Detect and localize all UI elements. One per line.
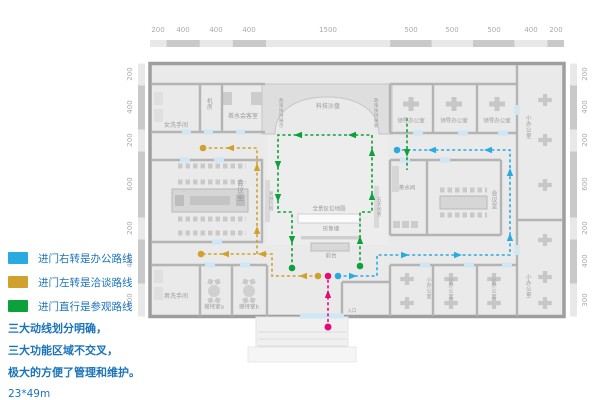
entrance-steps xyxy=(248,317,356,362)
dim-top-3: 400 xyxy=(242,26,255,34)
ruler-top xyxy=(150,40,564,47)
room-label-leader-office-2: 领导办公室 xyxy=(440,119,468,125)
note-line-2: 三大功能区域不交叉， xyxy=(8,340,146,362)
ruler-right xyxy=(570,64,577,317)
legend-item-tour: 进门直行是参观路线 xyxy=(8,294,146,318)
dim-right-0: 200 xyxy=(581,67,589,80)
room-label-men-restroom: 男洗手间 xyxy=(164,294,188,300)
room-label-small-office-right-bottom: 小办公室 xyxy=(524,274,530,298)
dim-right-6: 300 xyxy=(581,293,589,306)
room-label-small-office-right-top: 小办公室 xyxy=(524,115,530,139)
room-label-reception-a: 接待室a xyxy=(204,305,224,311)
dim-left-2: 200 xyxy=(126,133,134,146)
dim-top-1: 400 xyxy=(176,26,189,34)
legend-label-office: 进门右转是办公路线 xyxy=(38,251,133,266)
legend-item-negotiation: 进门左转是洽谈路线 xyxy=(8,270,146,294)
legend-item-office: 进门右转是办公路线 xyxy=(8,246,146,270)
legend: 进门右转是办公路线 进门左转是洽谈路线 进门直行是参观路线 三大动线划分明确， … xyxy=(8,246,146,400)
room-label-entrance: 入口 xyxy=(348,310,357,315)
dim-right-3: 600 xyxy=(581,177,589,190)
dim-top-0: 200 xyxy=(151,26,164,34)
office-route-swatch xyxy=(8,252,28,264)
dim-top-4: 1500 xyxy=(319,26,337,34)
dim-left-4: 200 xyxy=(126,221,134,234)
dim-left-0: 200 xyxy=(126,67,134,80)
room-label-leader-office-3: 领导办公室 xyxy=(483,119,511,125)
dim-left-3: 600 xyxy=(126,177,134,190)
room-label-tea-reception: 茶水会客室 xyxy=(228,114,258,120)
room-label-meeting-room: 会议室 xyxy=(237,179,244,202)
room-label-panorama-map: 全景区位地图 xyxy=(312,207,345,213)
room-label-policy-display-left: 政策扶持展示 xyxy=(278,98,283,128)
dim-top-8: 400 xyxy=(524,26,537,34)
dim-top-6: 500 xyxy=(445,26,458,34)
legend-label-tour: 进门直行是参观路线 xyxy=(38,299,133,314)
note-line-3: 极大的方便了管理和维护。 xyxy=(8,362,146,384)
room-label-tech-sandbox: 科技沙盘 xyxy=(316,104,340,110)
room-label-front-desk: 前台 xyxy=(325,254,336,260)
dim-top-2: 400 xyxy=(209,26,222,34)
room-label-image-wall: 形象墙 xyxy=(323,227,340,233)
dim-right-2: 200 xyxy=(581,133,589,146)
legend-label-negotiation: 进门左转是洽谈路线 xyxy=(38,275,133,290)
room-label-tea-room: 茶水间 xyxy=(399,186,416,192)
room-label-small-office-1: 小办公室 xyxy=(426,277,431,299)
floor-plan-page: 200 400 400 400 1500 500 500 500 400 200… xyxy=(0,0,600,400)
building-size-note: 23*49m xyxy=(8,388,146,400)
room-label-women-restroom: 女洗手间 xyxy=(164,123,188,129)
room-label-policy-display-right: 政策扶持展板 xyxy=(373,98,378,128)
room-label-machine-room: 机房 xyxy=(205,98,211,110)
room-label-dev-history: 发展历程 xyxy=(268,191,273,211)
dim-right-1: 400 xyxy=(581,100,589,113)
dim-top-7: 500 xyxy=(487,26,500,34)
room-label-five-advantages: 五大优势 xyxy=(376,197,381,217)
note-line-1: 三大动线划分明确， xyxy=(8,318,146,340)
dim-top-5: 500 xyxy=(404,26,417,34)
tour-route-swatch xyxy=(8,300,28,312)
dim-right-5: 400 xyxy=(581,254,589,267)
dim-left-1: 400 xyxy=(126,100,134,113)
room-label-small-office-2: 小办公室 xyxy=(448,277,453,299)
dim-right-4: 200 xyxy=(581,221,589,234)
dim-top-9: 200 xyxy=(549,26,562,34)
room-label-meeting-room2: 会议室 xyxy=(490,190,496,210)
room-label-small-office-3: 小办公室 xyxy=(491,277,496,299)
room-label-reception-b: 接待室b xyxy=(239,305,259,311)
negotiation-route-swatch xyxy=(8,276,28,288)
room-label-leader-office-1: 领导办公室 xyxy=(397,119,425,125)
entrance-door xyxy=(300,314,344,319)
